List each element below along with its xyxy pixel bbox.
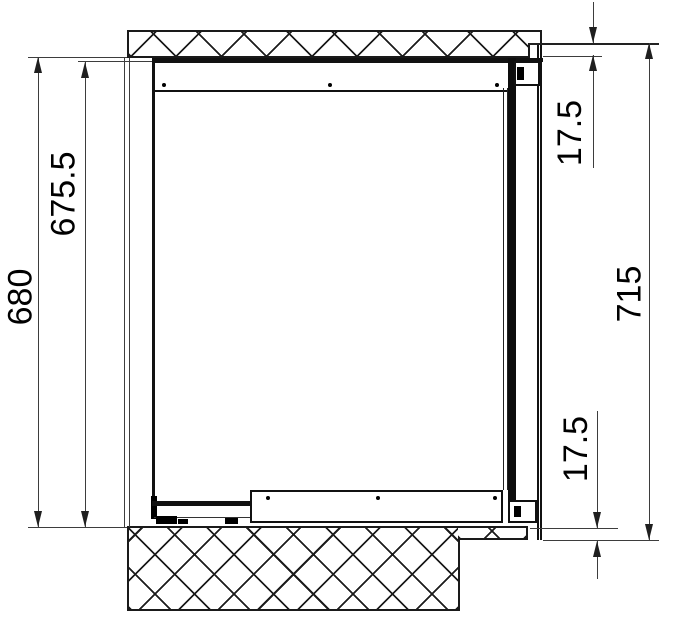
extension-line — [543, 540, 659, 541]
compressor-platform — [250, 490, 503, 523]
appliance-right-wall-line — [503, 88, 504, 490]
screw-dot — [493, 496, 497, 500]
appliance-base-plate — [152, 501, 252, 506]
arrowhead-up — [589, 55, 597, 71]
arrowhead-down — [34, 511, 42, 527]
dim-label-715: 715 — [569, 264, 680, 324]
extension-line — [28, 57, 127, 58]
screw-dot — [162, 83, 166, 87]
dim-label-680: 680 — [0, 257, 65, 337]
arrowhead-up — [645, 43, 653, 59]
niche-left-wall-outer-line — [124, 58, 125, 527]
arrowhead-down — [81, 511, 89, 527]
floor-hatch-main — [127, 526, 458, 611]
extension-line — [28, 527, 127, 528]
leveling-foot — [178, 519, 188, 524]
floor-hatch-strip — [458, 526, 528, 540]
extension-line — [530, 528, 618, 529]
extension-line — [528, 43, 659, 45]
worktop-hatch-band — [127, 30, 542, 58]
dimension-line-675-5 — [85, 62, 86, 527]
niche-left-wall-inner-line — [129, 58, 130, 527]
arrowhead-up — [34, 57, 42, 73]
technical-drawing-canvas: 680 675.5 17.5 715 17.5 — [0, 0, 680, 630]
arrowhead-up — [593, 541, 601, 557]
dim-label-17-5-bottom: 17.5 — [516, 419, 636, 479]
arrowhead-down — [645, 524, 653, 540]
dim-label-675-5: 675.5 — [4, 134, 124, 254]
hinge-clip — [514, 506, 521, 517]
floor-step-line — [458, 538, 460, 611]
extension-line — [78, 61, 152, 62]
arrowhead-down — [593, 512, 601, 528]
hinge-clip — [517, 67, 524, 80]
appliance-top-rail — [152, 61, 510, 92]
screw-dot — [495, 83, 499, 87]
arrowhead-down — [589, 27, 597, 43]
appliance-left-wall — [152, 61, 155, 518]
dim-label-17-5-top: 17.5 — [510, 103, 630, 163]
leveling-foot — [225, 518, 238, 524]
top-hinge-bracket — [514, 61, 540, 86]
bottom-hinge-bracket — [508, 500, 537, 523]
arrowhead-up — [81, 62, 89, 78]
screw-dot — [376, 496, 380, 500]
screw-dot — [328, 83, 332, 87]
screw-dot — [266, 496, 270, 500]
leveling-foot — [156, 516, 177, 524]
